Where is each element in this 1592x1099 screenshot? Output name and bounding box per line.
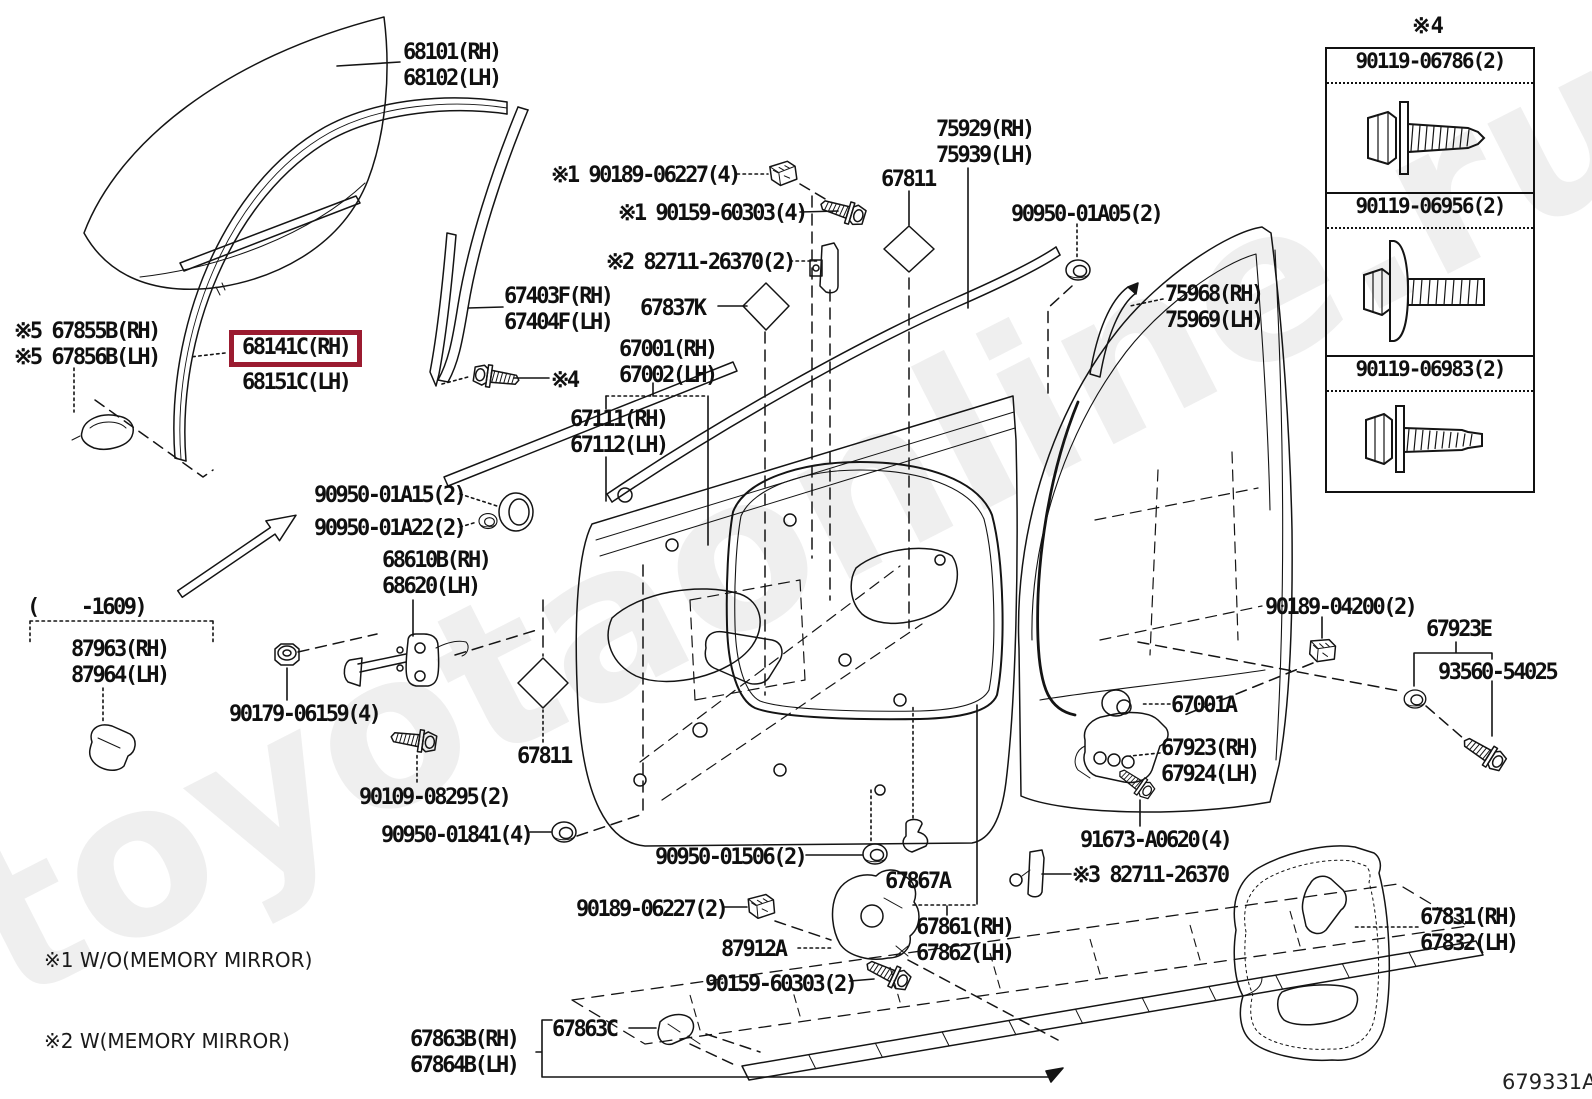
label-90950-01841: 90950-01841(4)	[381, 823, 531, 849]
label-note-4: ※4	[551, 368, 578, 394]
label-90179-06159: 90179-06159(4)	[229, 702, 379, 728]
label-range-1609: ( -1609)	[27, 595, 145, 621]
label-90109-08295: 90109-08295(2)	[359, 785, 509, 811]
label-90189-06227-4: ※1 90189-06227(4)	[551, 163, 739, 189]
label-90159-60303-4: ※1 90159-60303(4)	[618, 201, 806, 227]
label-90950-01A05: 90950-01A05(2)	[1011, 202, 1161, 228]
label-67811-top: 67811	[881, 167, 935, 193]
label-93560-54025: 93560-54025	[1438, 660, 1556, 686]
service-hole-cover-drawing	[1234, 846, 1389, 1060]
label-82711-26370-3: ※3 82711-26370	[1072, 863, 1228, 889]
window-glass-drawing	[84, 17, 387, 295]
label-82711-26370-2: ※2 82711-26370(2)	[606, 250, 794, 276]
label-67923E: 67923E	[1426, 617, 1490, 643]
legend: ※1 W/O(MEMORY MIRROR) ※2 W(MEMORY MIRROR…	[44, 893, 526, 1099]
bolt-icon	[1327, 84, 1533, 192]
door-check-cover-drawing	[1075, 690, 1168, 783]
inset-part-number: 90119-06983(2)	[1327, 357, 1533, 392]
label-67831: 67831(RH)67832(LH)	[1420, 905, 1517, 957]
label-90189-06227-2: 90189-06227(2)	[576, 897, 726, 923]
label-90159-60303-2: 90159-60303(2)	[705, 972, 855, 998]
label-68101: 68101(RH)68102(LH)	[403, 40, 500, 92]
label-67861: 67861(RH)67862(LH)	[916, 915, 1013, 967]
parts-diagram-page: toyotaonline.ru	[0, 0, 1592, 1099]
label-75929: 75929(RH)75939(LH)	[936, 117, 1033, 169]
door-check-strap-drawing	[344, 634, 468, 686]
label-87963: 87963(RH)87964(LH)	[71, 637, 168, 689]
legend-item-1: ※1 W/O(MEMORY MIRROR)	[44, 947, 526, 974]
bolt-icon	[1327, 392, 1533, 486]
inset-part-number: 90119-06786(2)	[1327, 49, 1533, 84]
direction-arrow	[178, 515, 296, 597]
label-68141C: 68141C(RH)68151C(LH)	[242, 334, 362, 396]
hardware-inset-box: 90119-06786(2) 90119-06956(2)	[1325, 47, 1535, 493]
inset-row: 90119-06983(2)	[1327, 357, 1533, 486]
label-75968: 75968(RH)75969(LH)	[1165, 282, 1262, 334]
label-87912A: 87912A	[721, 937, 785, 963]
label-90189-04200: 90189-04200(2)	[1265, 595, 1415, 621]
label-68610B: 68610B(RH)68620(LH)	[382, 548, 489, 600]
label-67867A: 67867A	[885, 869, 949, 895]
diagram-code: 679331A	[1502, 1070, 1592, 1094]
inset-box-title: ※4	[1395, 14, 1461, 39]
inset-row: 90119-06956(2)	[1327, 194, 1533, 357]
label-67855B: ※5 67855B(RH)※5 67856B(LH)	[14, 319, 159, 371]
label-91673-A0620: 91673-A0620(4)	[1080, 828, 1230, 854]
inset-part-number: 90119-06956(2)	[1327, 194, 1533, 229]
label-67923: 67923(RH)67924(LH)	[1161, 736, 1258, 788]
label-67001A: 67001A	[1171, 693, 1235, 719]
label-67811-mid: 67811	[517, 744, 571, 770]
label-90950-01506: 90950-01506(2)	[655, 845, 805, 871]
inset-row: 90119-06786(2)	[1327, 49, 1533, 194]
bolt-icon	[1327, 229, 1533, 355]
label-67863C: 67863C	[552, 1017, 616, 1043]
weatherstrip-drawing	[727, 462, 1003, 719]
label-67001: 67001(RH)67002(LH)	[619, 337, 716, 389]
door-panel-drawing	[444, 362, 1017, 846]
label-67111: 67111(RH)67112(LH)	[570, 407, 667, 459]
label-67837K: 67837K	[640, 296, 704, 322]
label-67403F: 67403F(RH)67404F(LH)	[504, 284, 611, 336]
label-90950-01A22: 90950-01A22(2)	[314, 516, 464, 542]
glass-run-channel-drawing	[174, 98, 528, 461]
label-90950-01A15: 90950-01A15(2)	[314, 483, 464, 509]
legend-item-2: ※2 W(MEMORY MIRROR)	[44, 1028, 526, 1055]
